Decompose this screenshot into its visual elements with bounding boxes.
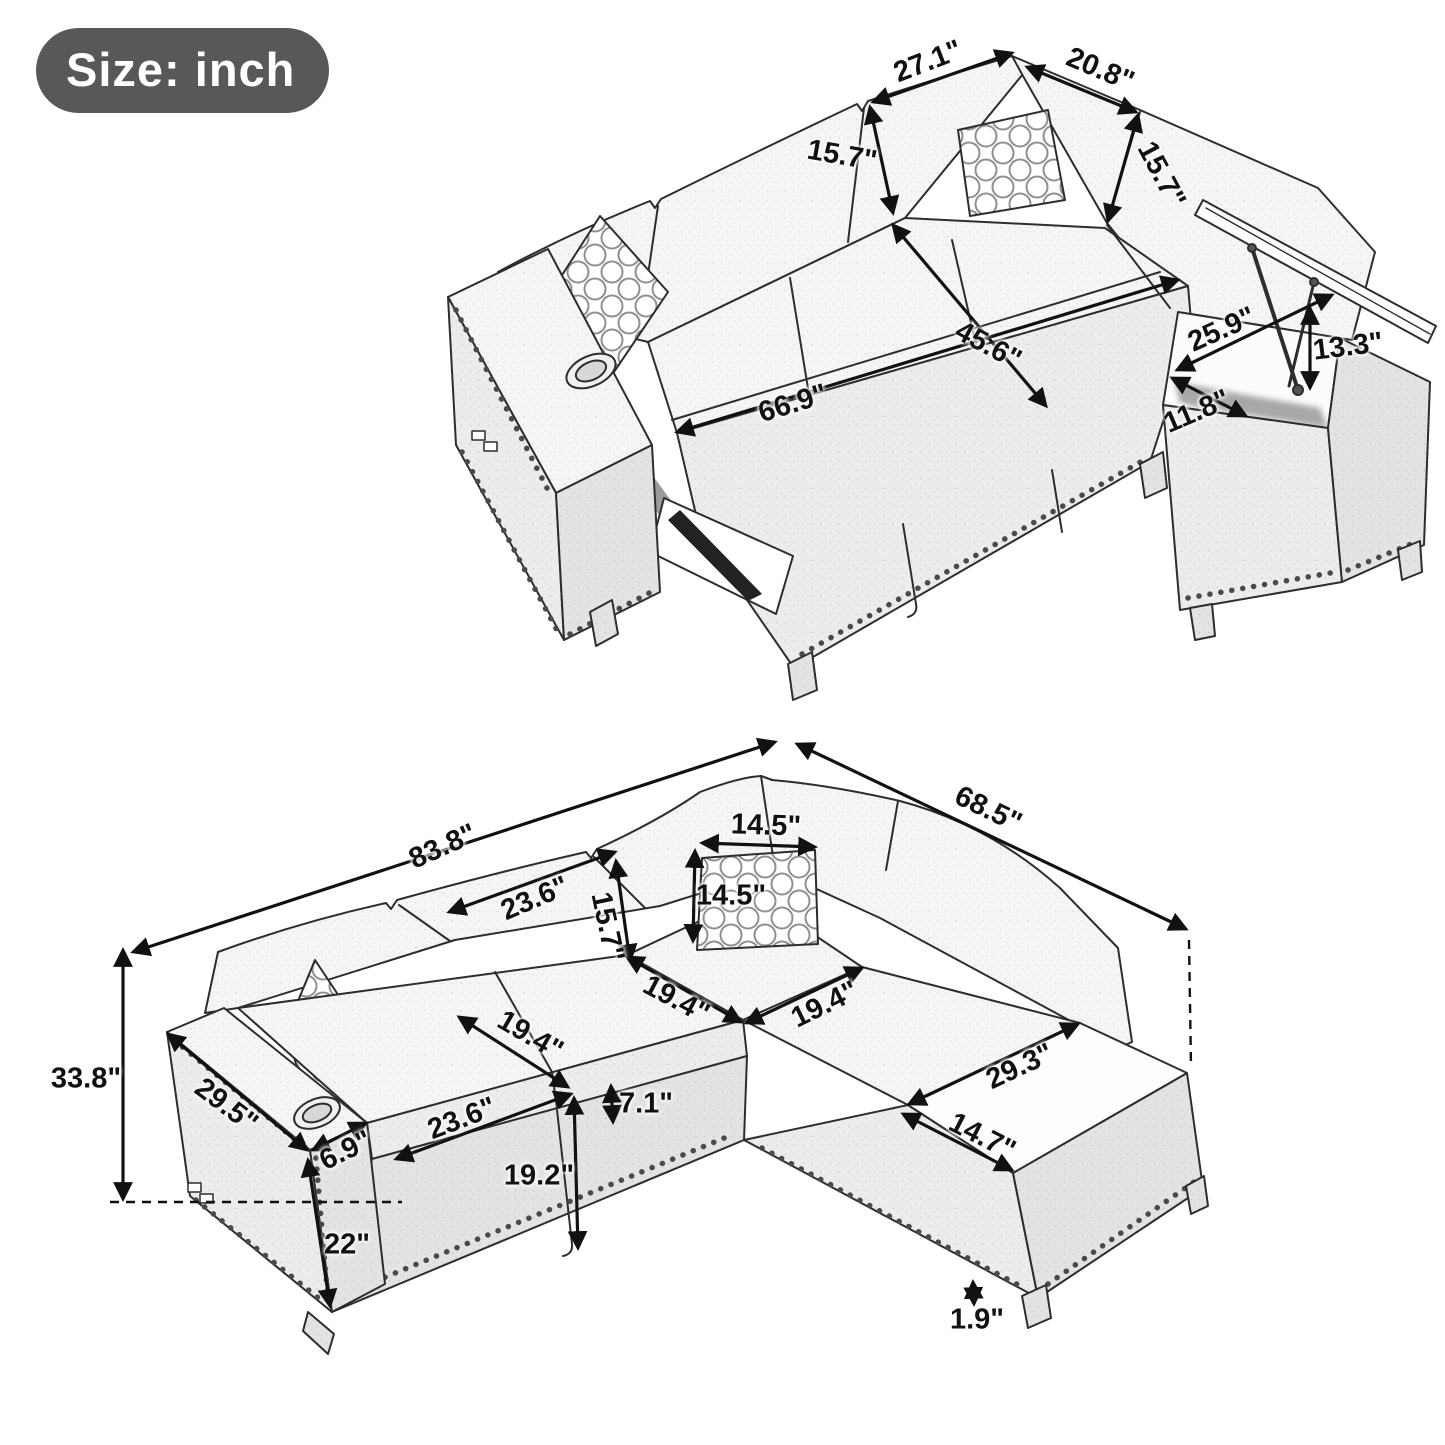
sofa-open-illustration [448,56,1436,700]
dim-arm-front-height: 22" [324,1229,370,1262]
dim-seat-front-height: 7.1" [619,1088,673,1121]
dim-overall-height: 33.8" [51,1063,121,1096]
dim-pillow-height: 14.5" [696,880,766,913]
open-corner-pillow [958,110,1065,216]
guide-depth-dashed [1189,940,1191,1066]
arrow-pillow-height [693,851,695,941]
size-unit-badge: Size: inch [36,28,329,113]
open-leg-chaise-l [1190,604,1215,640]
dim-seat-height-floor: 19.2" [504,1160,574,1193]
dimension-diagram: Size: inch 27.1" 20.8" 15.7" 15.7" 45.6"… [0,0,1445,1445]
arrow-seat-front-height [611,1086,613,1122]
open-storage-front [1163,405,1342,610]
closed-leg-arm [303,1312,334,1354]
dim-pillow-width: 14.5" [730,808,801,843]
arrow-leg-height [973,1282,974,1304]
dim-leg-height: 1.9" [950,1304,1004,1337]
sofa-line-art [0,0,1445,1445]
